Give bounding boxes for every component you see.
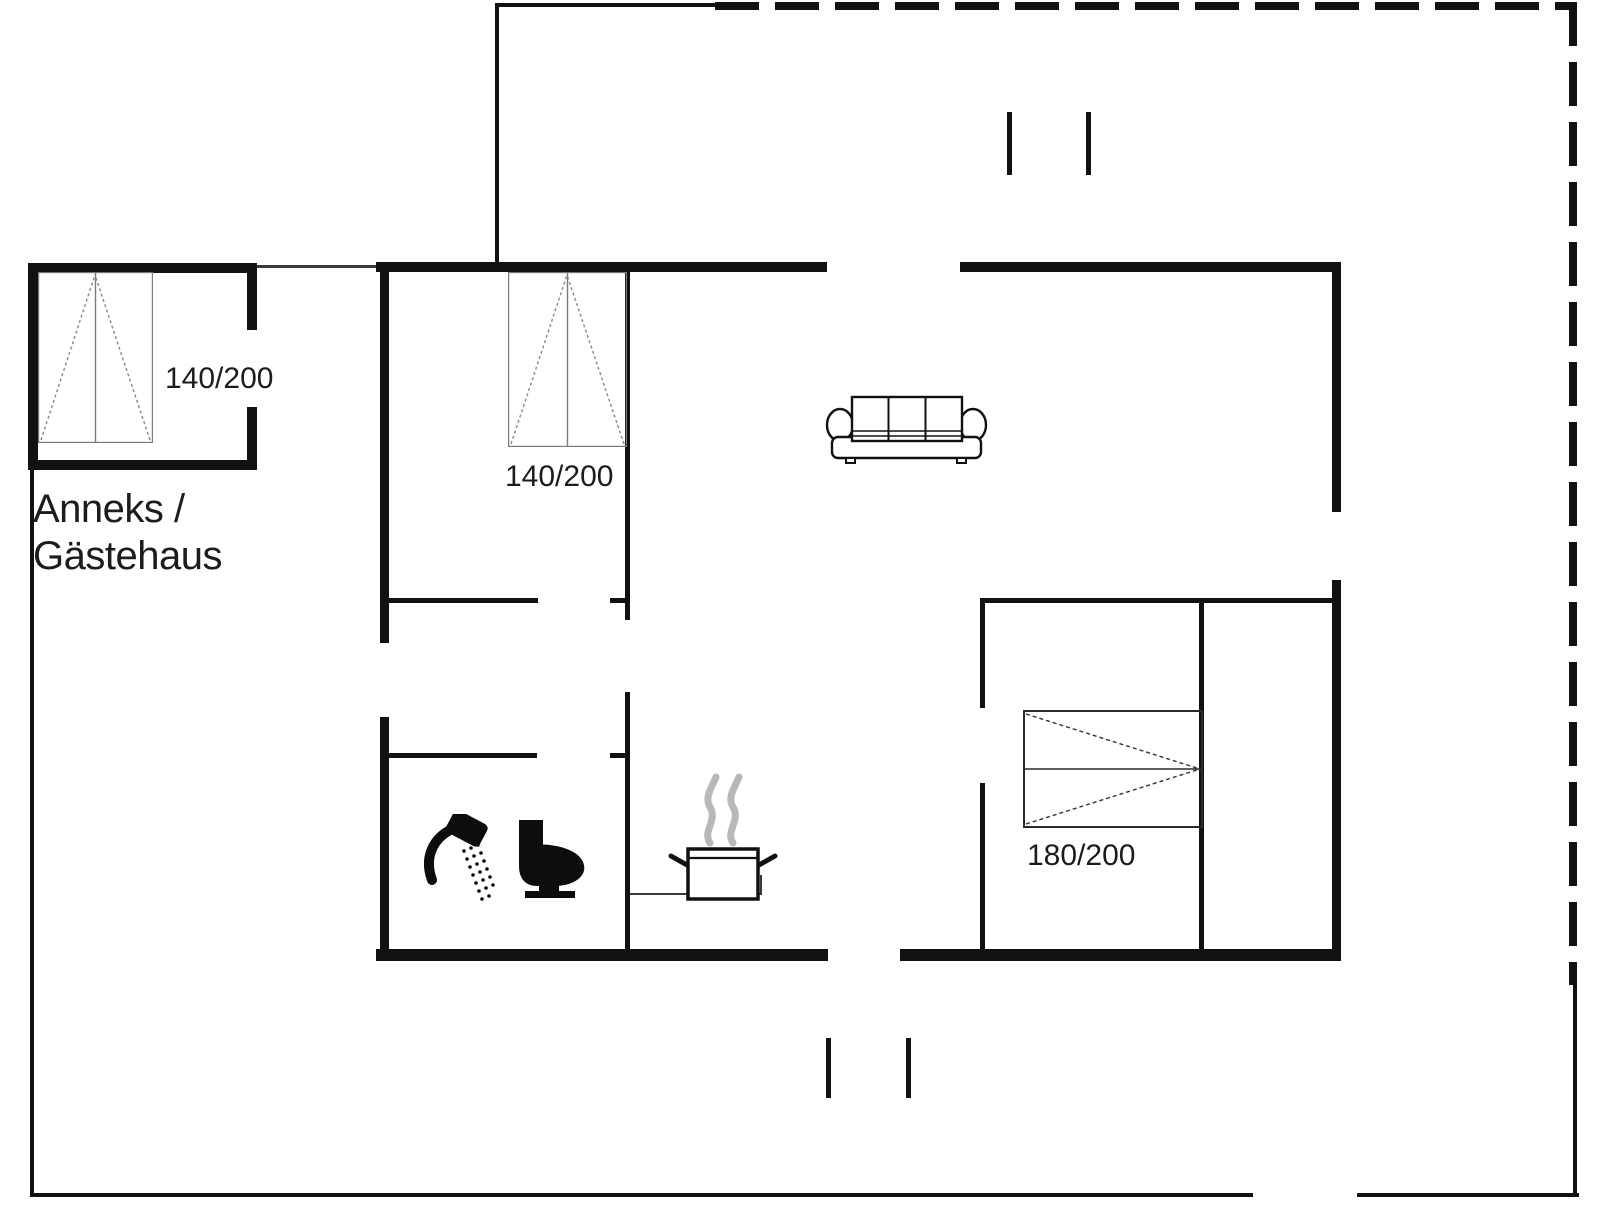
wall-kitchen-divider-lower	[625, 692, 630, 949]
annex-double-bed-icon	[38, 272, 153, 443]
terrace-door-tick-left	[1007, 112, 1012, 175]
toilet-icon	[515, 820, 589, 899]
wall-bedroom1-hall	[385, 598, 538, 603]
boundary-bottom-left	[30, 1193, 1253, 1197]
floor-plan: 140/200 140/200 180/200 Anneks / Gästeha…	[0, 0, 1606, 1205]
boundary-bottom-right	[1357, 1193, 1579, 1197]
boundary-right-solid	[1573, 985, 1577, 1197]
house-wall-right-upper	[1332, 262, 1341, 512]
sofa-icon	[825, 395, 988, 465]
terrace-door-tick-right	[1086, 112, 1091, 175]
annex-connector-line	[257, 265, 378, 268]
bedroom2-bed-size-label: 180/200	[1027, 839, 1135, 873]
dashed-terrace-boundary-top	[715, 2, 1577, 10]
bedroom1-bed-size-label: 140/200	[505, 460, 613, 494]
annex-name-line2: Gästehaus	[33, 533, 222, 580]
wall-bathroom-top-stub	[610, 753, 630, 758]
bedroom1-double-bed-icon	[508, 272, 627, 447]
boundary-vertical-line-top	[495, 3, 499, 265]
wall-bathroom-top	[385, 753, 537, 758]
house-wall-south-left-segment	[376, 949, 828, 961]
annex-bed-size-label: 140/200	[165, 362, 273, 396]
house-wall-top-right-segment	[960, 262, 1341, 272]
annex-name-label: Anneks / Gästehaus	[33, 486, 222, 580]
annex-wall-left	[28, 263, 38, 470]
annex-name-line1: Anneks /	[33, 486, 222, 533]
house-wall-top-left-segment	[376, 262, 827, 272]
annex-wall-right-lower	[247, 407, 257, 470]
annex-wall-bottom	[28, 460, 257, 470]
annex-wall-right-upper	[247, 263, 257, 330]
entrance-door-tick-left	[826, 1038, 831, 1098]
dashed-terrace-boundary-right	[1569, 2, 1577, 985]
house-wall-right-lower	[1332, 580, 1341, 961]
shower-icon	[424, 814, 506, 904]
bedroom2-double-bed-icon	[1023, 710, 1203, 828]
wall-bedroom2-top	[980, 598, 1332, 603]
house-wall-left-upper	[380, 262, 389, 643]
wall-bedroom2-left-lower	[980, 783, 985, 950]
wall-bedroom2-left-upper	[980, 600, 985, 708]
boundary-top-solid	[495, 3, 715, 7]
cooking-pot-icon	[666, 773, 780, 903]
house-wall-south-right-segment	[900, 949, 1341, 961]
entrance-door-tick-right	[906, 1038, 911, 1098]
